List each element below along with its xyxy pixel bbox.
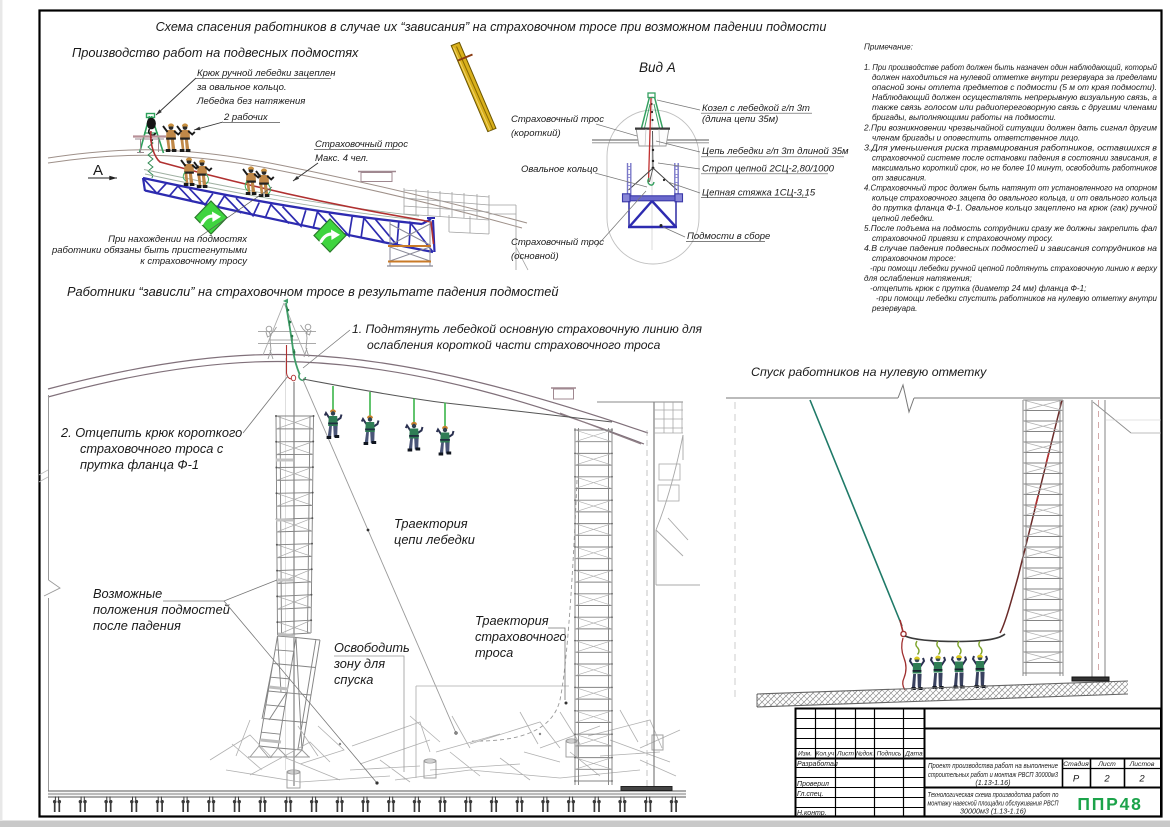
svg-text:опасной зоны отлета предметов: опасной зоны отлета предметов с подмости… (872, 83, 1157, 92)
svg-text:Стадия: Стадия (1063, 760, 1089, 768)
svg-text:Проект производства работ на в: Проект производства работ на выполнение (928, 762, 1058, 770)
svg-text:Изм.: Изм. (798, 751, 812, 758)
svg-text:к страховочному тросу: к страховочному тросу (140, 256, 248, 267)
svg-text:Страховочный трос: Страховочный трос (511, 114, 604, 125)
svg-text:Кол.уч: Кол.уч (816, 751, 835, 758)
svg-text:Страховочный трос: Страховочный трос (511, 237, 604, 248)
svg-text:Подпись: Подпись (877, 751, 902, 758)
svg-text:страховочном тросе:: страховочном тросе: (872, 254, 956, 263)
svg-text:2: 2 (1138, 774, 1145, 785)
svg-text:бригады, выполняющими работы н: бригады, выполняющими работы на подмости… (872, 113, 1056, 122)
svg-text:Макс. 4 чел.: Макс. 4 чел. (315, 153, 369, 164)
svg-text:Примечание:: Примечание: (864, 43, 913, 52)
svg-text:после падения: после падения (93, 618, 181, 633)
svg-text:Козел с лебедкой г/п 3т: Козел с лебедкой г/п 3т (702, 103, 810, 114)
svg-text:Технологическая схема производ: Технологическая схема производства работ… (928, 791, 1059, 799)
svg-text:максимально короткий срок, но: максимально короткий срок, но не более 1… (872, 164, 1157, 173)
svg-text:страховочного троса с: страховочного троса с (80, 441, 224, 456)
svg-text:30000м3 (1.13-1.16): 30000м3 (1.13-1.16) (960, 807, 1026, 816)
svg-text:троса: троса (475, 645, 513, 660)
svg-text:1. При производстве работ долж: 1. При производстве работ должен быть на… (864, 63, 1157, 72)
svg-text:цепной лебедки.: цепной лебедки. (872, 214, 934, 223)
svg-text:5.После подъема на подмость со: 5.После подъема на подмость сотрудники с… (864, 224, 1157, 233)
svg-text:Схема спасения работников в сл: Схема спасения работников в случае их “з… (156, 20, 827, 34)
svg-text:ослабления короткой части стра: ослабления короткой части страховочного … (367, 338, 661, 352)
svg-text:Цепь лебедки г/п 3т длиной 35м: Цепь лебедки г/п 3т длиной 35м (702, 146, 849, 157)
svg-text:Освободить: Освободить (334, 640, 410, 655)
svg-text:страховочного: страховочного (475, 629, 567, 644)
svg-text:1. Поднтянуть лебедкой основну: 1. Поднтянуть лебедкой основную страхово… (352, 322, 703, 336)
svg-text:кольце страховочного зацепа до: кольце страховочного зацепа до овального… (872, 194, 1157, 203)
svg-text:4.В случае падения подвесных п: 4.В случае падения подвесных подмостей и… (864, 244, 1158, 253)
svg-text:Лебедка без натяжения: Лебедка без натяжения (196, 96, 305, 107)
svg-text:2 рабочих: 2 рабочих (223, 112, 269, 123)
svg-text:Работники “зависли” на страхов: Работники “зависли” на страховочном трос… (67, 284, 558, 299)
svg-text:А: А (93, 162, 103, 179)
svg-text:Страховочный трос: Страховочный трос (315, 139, 408, 150)
svg-text:Разработал: Разработал (797, 760, 838, 768)
svg-text:Вид А: Вид А (639, 60, 676, 75)
svg-text:ППР48: ППР48 (1077, 794, 1142, 814)
svg-text:должен находиться на нулевой о: должен находиться на нулевой отметке вну… (872, 73, 1157, 82)
svg-text:цепи лебедки: цепи лебедки (394, 532, 475, 547)
svg-text:положения подмостей: положения подмостей (93, 602, 230, 617)
svg-text:также связь голосом или радиоп: также связь голосом или радиопереговорну… (872, 103, 1158, 112)
svg-text:спуска: спуска (334, 672, 373, 687)
svg-text:Цепная стяжка 1СЦ-3,15: Цепная стяжка 1СЦ-3,15 (702, 187, 816, 198)
svg-text:№док.: №док. (856, 751, 874, 758)
svg-text:Строп цепной 2СЦ-2,80/1000: Строп цепной 2СЦ-2,80/1000 (702, 164, 835, 175)
svg-text:При нахождении на подмостях: При нахождении на подмостях (108, 234, 248, 245)
svg-text:работники обязаны быть пристег: работники обязаны быть пристегнутыми (51, 245, 248, 256)
svg-text:Проверил: Проверил (797, 781, 829, 788)
svg-text:Траектория: Траектория (394, 516, 468, 531)
svg-text:Траектория: Траектория (475, 613, 549, 628)
svg-text:Подмости в сборе: Подмости в сборе (687, 231, 770, 242)
svg-text:для ослабления натяжения;: для ослабления натяжения; (864, 274, 972, 283)
svg-text:Р: Р (1073, 774, 1080, 785)
svg-text:от зависания.: от зависания. (872, 174, 926, 183)
svg-text:2: 2 (1103, 774, 1110, 785)
svg-text:Гл.спец.: Гл.спец. (797, 791, 824, 798)
svg-text:прутка фланца Ф-1: прутка фланца Ф-1 (80, 457, 199, 472)
svg-text:2.При возникновении чрезвычайн: 2.При возникновении чрезвычайной ситуаци… (863, 123, 1157, 132)
svg-text:Возможные: Возможные (93, 586, 162, 601)
svg-text:Листов: Листов (1129, 761, 1155, 768)
svg-text:(длина цепи 35м): (длина цепи 35м) (702, 114, 778, 125)
svg-text:Лист: Лист (836, 751, 854, 758)
svg-text:резервуара.: резервуара. (871, 304, 917, 313)
svg-text:Крюк ручной лебедки зацеплен: Крюк ручной лебедки зацеплен (197, 68, 336, 79)
svg-text:за овальное кольцо.: за овальное кольцо. (196, 82, 287, 93)
svg-text:Дата: Дата (904, 751, 923, 758)
svg-text:3.Для уменьшения риска травмир: 3.Для уменьшения риска травмирования раб… (864, 143, 1157, 152)
svg-text:-отцепить крюк с прутка (диаме: -отцепить крюк с прутка (диаметр 24 мм) … (870, 284, 1086, 293)
svg-text:Н.контр.: Н.контр. (797, 810, 827, 817)
svg-text:Овальное кольцо: Овальное кольцо (521, 164, 598, 175)
svg-text:(1.13-1.16): (1.13-1.16) (975, 778, 1010, 787)
svg-text:членам бригады и оповестить от: членам бригады и оповестить ответственно… (872, 133, 1080, 142)
svg-text:(короткий): (короткий) (511, 128, 561, 139)
svg-text:(основной): (основной) (511, 251, 559, 262)
svg-text:страховочной привязи к страхов: страховочной привязи к страховочному тро… (872, 234, 1053, 243)
svg-text:Производство работ на подвесны: Производство работ на подвесных подмостя… (72, 45, 359, 60)
svg-text:4.Страховочный трос должен быт: 4.Страховочный трос должен быть натянут … (864, 184, 1157, 193)
svg-text:2. Отцепить крюк короткого: 2. Отцепить крюк короткого (60, 425, 242, 440)
svg-text:-при помощи лебедки ручной цеп: -при помощи лебедки ручной цепной подтян… (870, 264, 1158, 273)
svg-text:Спуск работников на нулевую от: Спуск работников на нулевую отметку (751, 365, 987, 379)
svg-text:страховочной системе после ост: страховочной системе после остановки пад… (872, 154, 1157, 163)
svg-text:Наблюдающий должен осуществлят: Наблюдающий должен осуществлять непрерыв… (872, 93, 1158, 102)
svg-text:зону для: зону для (333, 656, 385, 671)
svg-text:Лист: Лист (1097, 761, 1116, 768)
svg-text:до прутка фланца Ф-1. Овальное: до прутка фланца Ф-1. Овальное кольцо за… (872, 204, 1158, 213)
svg-text:-при помощи лебедки спустить р: -при помощи лебедки спустить работников … (876, 294, 1157, 303)
